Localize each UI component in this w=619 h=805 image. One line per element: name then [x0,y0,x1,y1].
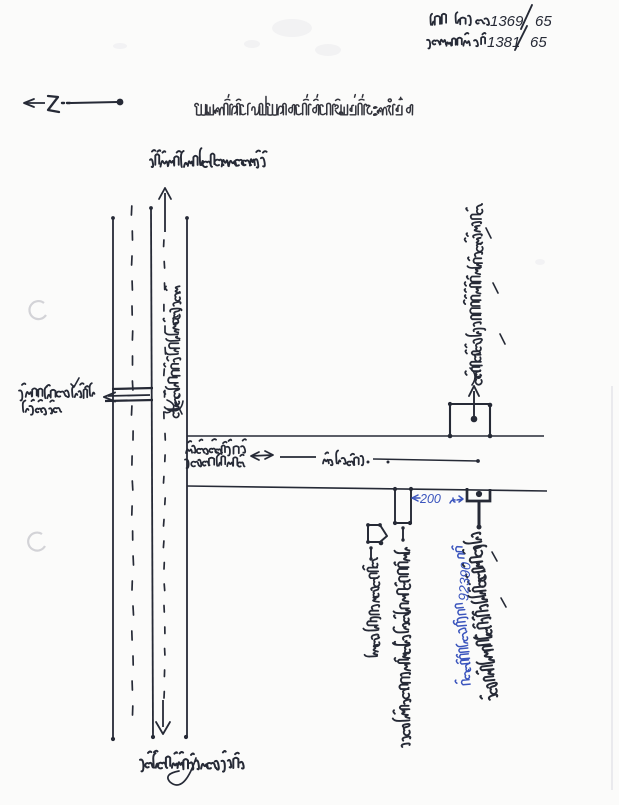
svg-text:92390: 92390 [455,561,474,601]
svg-text:1369: 1369 [490,13,524,30]
svg-text:65: 65 [535,13,552,30]
svg-text:200: 200 [419,492,441,506]
svg-text:65: 65 [530,34,547,51]
